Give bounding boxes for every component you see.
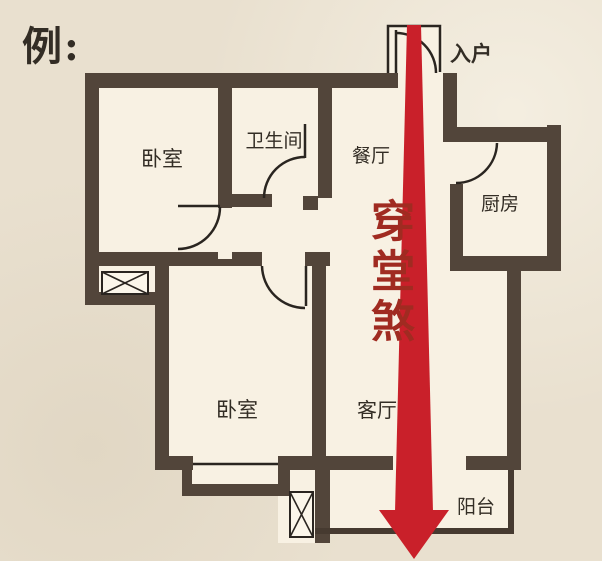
floor-area-entry-niche [388,26,443,73]
wall-bathroom-bottom [228,194,272,207]
room-label-bedroom-bottom: 卧室 [200,394,274,424]
wall-kitchen-left [450,184,463,271]
wall-kitchen-right [547,125,561,271]
wall-bedroom-bottom-left [155,252,169,470]
room-label-dining: 餐厅 [336,141,406,168]
wall-left [85,73,99,305]
room-label-kitchen: 厨房 [465,189,535,216]
wall-hall-run-left [98,252,218,266]
room-label-living: 客厅 [342,394,412,423]
room-label-bedroom-top: 卧室 [127,143,197,173]
room-label-balcony: 阳台 [441,492,511,519]
wall-hall-run-notch [218,259,232,266]
wall-divider-extension [315,463,330,543]
floor-plan-canvas: 例: 入户 卧室 卫生间 餐厅 厨房 卧室 客厅 阳台 穿堂煞 [0,0,602,561]
room-label-bathroom: 卫生间 [229,126,319,153]
wall-top [85,73,398,88]
wall-bathroom-corner [303,196,318,210]
page-title: 例: [22,14,81,72]
wall-hall-run-mid [232,252,262,266]
wall-bay-bottom [182,484,290,496]
wall-divider-upper [318,86,332,198]
annotation-chuantangsha: 穿堂煞 [356,198,420,348]
wall-living-right [507,256,521,470]
wall-kitchen-bottom [450,256,561,271]
wall-living-bottom-left [278,456,393,470]
entry-label: 入户 [450,38,492,68]
wall-kitchen-top [443,127,561,142]
wall-divider-lower [312,252,326,463]
floor-area-bedroom-bottom [155,252,330,470]
